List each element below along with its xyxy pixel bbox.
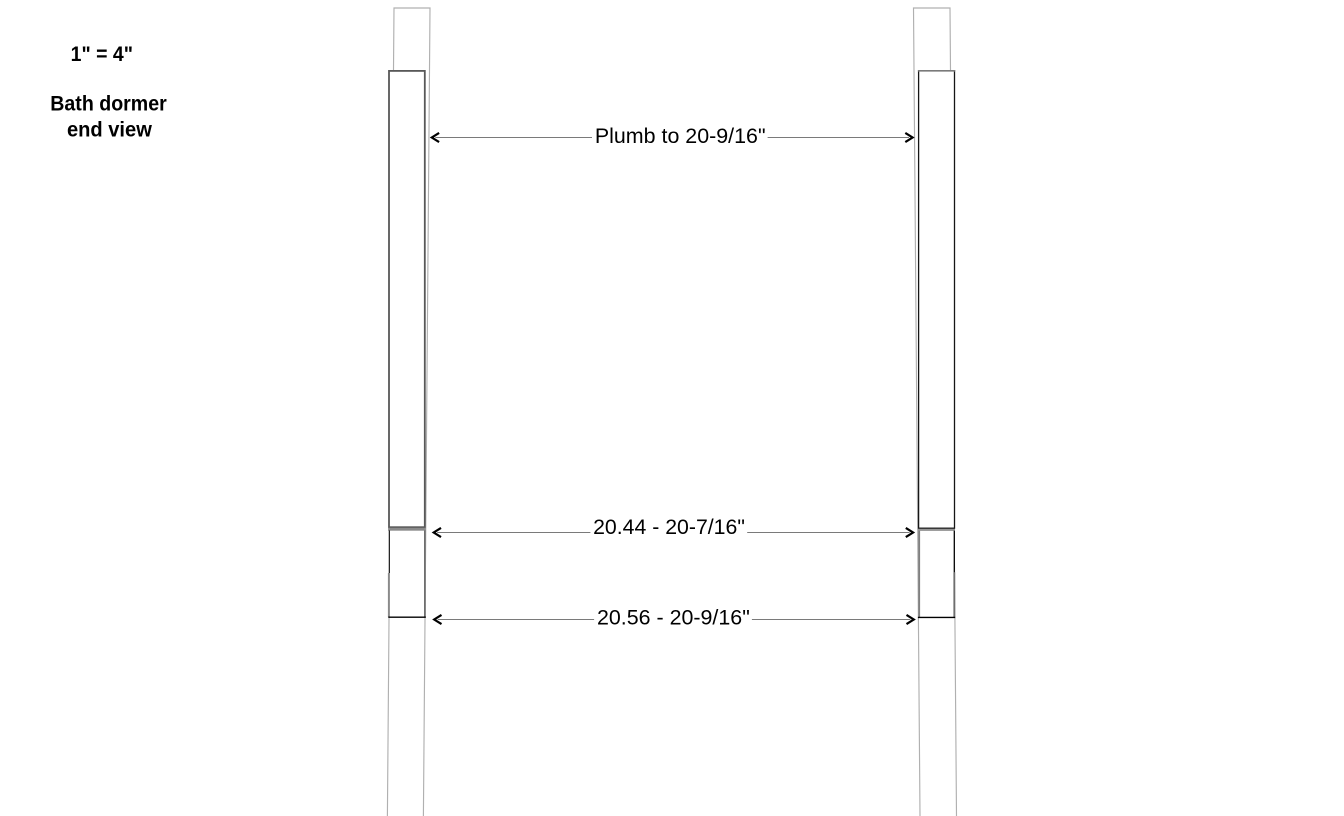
- svg-text:Plumb to 20-9/16": Plumb to 20-9/16": [595, 124, 766, 148]
- svg-text:20.56 - 20-9/16": 20.56 - 20-9/16": [597, 606, 750, 630]
- svg-text:end view: end view: [67, 117, 152, 141]
- svg-text:Bath dormer: Bath dormer: [50, 91, 167, 115]
- svg-text:1" = 4": 1" = 4": [71, 42, 133, 66]
- svg-text:20.44 - 20-7/16": 20.44 - 20-7/16": [593, 515, 745, 539]
